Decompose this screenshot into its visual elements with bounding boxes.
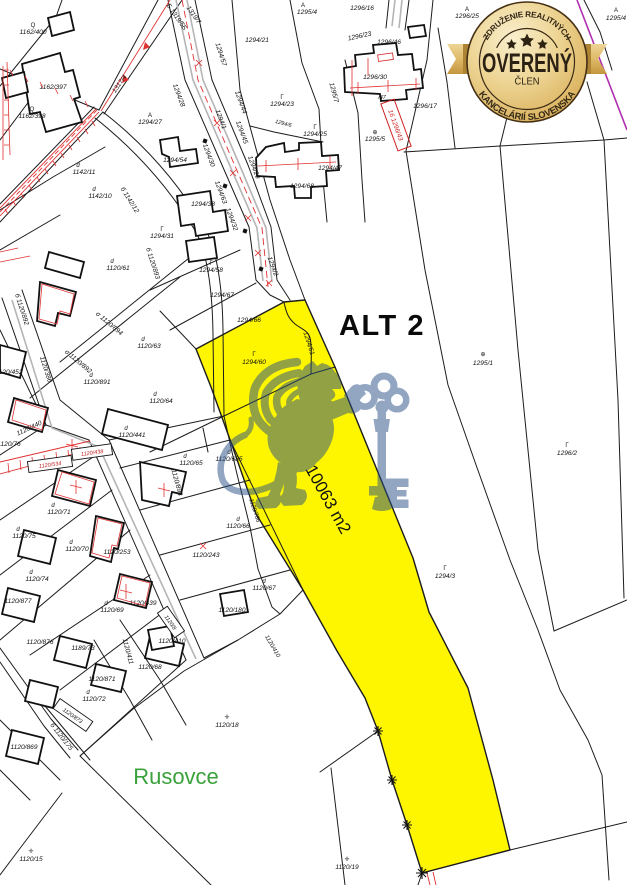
svg-text:1295/1: 1295/1 xyxy=(473,360,494,367)
svg-text:Rusovce: Rusovce xyxy=(133,764,219,789)
svg-text:1120/75: 1120/75 xyxy=(12,533,36,540)
svg-text:1120/18: 1120/18 xyxy=(215,722,239,729)
svg-text:1294/38: 1294/38 xyxy=(191,201,215,208)
svg-text:✛: ✛ xyxy=(28,848,33,855)
svg-text:⊕: ⊕ xyxy=(480,352,485,358)
svg-text:1120/76: 1120/76 xyxy=(0,441,21,448)
svg-text:1294/31: 1294/31 xyxy=(150,233,174,240)
svg-text:1296/25: 1296/25 xyxy=(455,13,479,20)
svg-text:1120/877: 1120/877 xyxy=(4,598,31,605)
svg-text:1120/64: 1120/64 xyxy=(149,398,173,405)
svg-text:1296/17: 1296/17 xyxy=(413,103,437,110)
svg-text:1120/410: 1120/410 xyxy=(158,638,185,645)
svg-text:1296/16: 1296/16 xyxy=(350,5,374,12)
svg-text:1294/68: 1294/68 xyxy=(290,183,314,190)
svg-text:ALT 2: ALT 2 xyxy=(339,310,425,342)
svg-text:1296/2: 1296/2 xyxy=(557,450,578,457)
svg-text:1295/4: 1295/4 xyxy=(606,15,627,22)
svg-text:ČLEN: ČLEN xyxy=(515,75,540,88)
svg-text:1120/69: 1120/69 xyxy=(100,607,124,614)
svg-text:1296/30: 1296/30 xyxy=(363,74,387,81)
svg-text:✛: ✛ xyxy=(224,714,229,721)
svg-text:1294/27: 1294/27 xyxy=(138,119,162,126)
svg-text:1120/71: 1120/71 xyxy=(47,509,71,516)
svg-text:A: A xyxy=(614,8,618,14)
svg-text:1294/21: 1294/21 xyxy=(245,37,269,44)
svg-text:1120/871: 1120/871 xyxy=(88,676,115,683)
svg-text:1120/439: 1120/439 xyxy=(129,600,156,607)
svg-text:1120/70: 1120/70 xyxy=(65,546,89,553)
svg-text:1296/46: 1296/46 xyxy=(377,39,401,46)
svg-text:1294/54: 1294/54 xyxy=(163,157,187,164)
svg-text:1120/180: 1120/180 xyxy=(218,607,245,614)
svg-text:1162/397: 1162/397 xyxy=(39,84,66,91)
svg-text:1120/15: 1120/15 xyxy=(19,856,43,863)
svg-text:1120/869: 1120/869 xyxy=(10,744,37,751)
svg-text:1295/5: 1295/5 xyxy=(365,136,386,143)
svg-text:OVERENÝ: OVERENÝ xyxy=(482,47,572,78)
svg-text:1120/74: 1120/74 xyxy=(25,576,49,583)
svg-text:1120/66: 1120/66 xyxy=(226,523,250,530)
svg-text:Q: Q xyxy=(31,23,36,29)
svg-text:1295/4: 1295/4 xyxy=(297,9,318,16)
svg-text:1120/68: 1120/68 xyxy=(138,664,162,671)
svg-text:1120/452: 1120/452 xyxy=(0,369,23,376)
svg-text:1120/19: 1120/19 xyxy=(335,864,359,871)
svg-text:1162/398: 1162/398 xyxy=(18,113,45,120)
svg-text:1142/10: 1142/10 xyxy=(88,193,112,200)
svg-text:1142/11: 1142/11 xyxy=(73,169,96,176)
svg-text:✛: ✛ xyxy=(344,856,349,863)
svg-text:Q: Q xyxy=(30,107,35,113)
svg-text:1120/72: 1120/72 xyxy=(82,696,106,703)
svg-text:1120/441: 1120/441 xyxy=(118,432,145,439)
svg-text:1189/73: 1189/73 xyxy=(71,645,95,652)
svg-text:A: A xyxy=(148,113,152,119)
svg-text:1294/3: 1294/3 xyxy=(435,573,456,580)
svg-text:A: A xyxy=(465,7,469,13)
svg-text:1120/63: 1120/63 xyxy=(137,343,161,350)
svg-text:1294/23: 1294/23 xyxy=(270,101,294,108)
svg-text:1120/891: 1120/891 xyxy=(83,379,110,386)
svg-text:1120/253: 1120/253 xyxy=(103,549,130,556)
svg-text:1294/25: 1294/25 xyxy=(303,131,327,138)
svg-text:1294/58: 1294/58 xyxy=(199,267,223,274)
svg-text:1294/66: 1294/66 xyxy=(237,317,261,324)
svg-text:1294/67: 1294/67 xyxy=(210,292,234,299)
svg-text:1120/67: 1120/67 xyxy=(252,585,276,592)
svg-text:1120/243: 1120/243 xyxy=(192,552,219,559)
svg-text:/47: /47 xyxy=(377,95,387,101)
svg-text:A: A xyxy=(301,3,305,9)
svg-text:1162/400: 1162/400 xyxy=(19,29,46,36)
svg-text:1120/61: 1120/61 xyxy=(106,265,130,272)
svg-text:1120/876: 1120/876 xyxy=(26,639,53,646)
svg-text:⊕: ⊕ xyxy=(372,130,377,136)
svg-text:1294/60: 1294/60 xyxy=(242,359,266,366)
svg-text:1120/65: 1120/65 xyxy=(179,460,203,467)
